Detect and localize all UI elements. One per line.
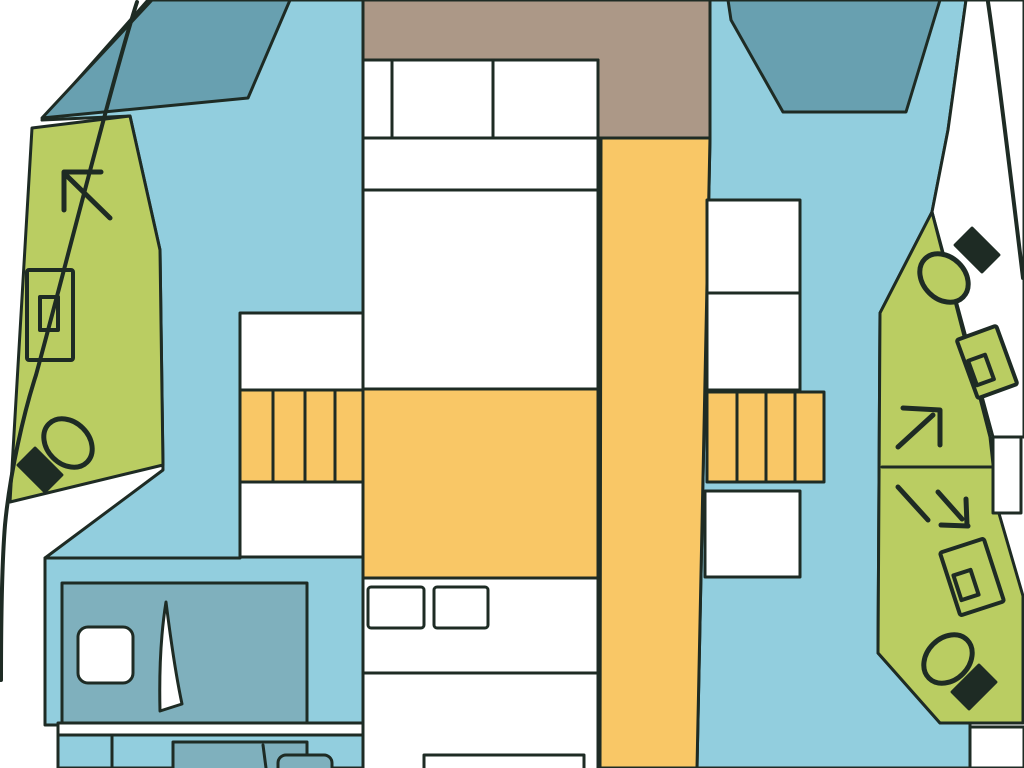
guest-bed-pillow-right <box>434 587 488 628</box>
starboard-locker-upper <box>707 200 800 293</box>
owner-bed <box>363 60 598 389</box>
floorplan-svg <box>0 0 1024 768</box>
guest-bed-pillow-left <box>368 587 424 628</box>
port-landing-upper <box>240 313 363 390</box>
port-landing-lower <box>240 482 363 557</box>
boat-floor-plan <box>0 0 1024 768</box>
guest-bed-footboard <box>424 755 584 768</box>
starboard-window <box>993 437 1021 513</box>
port-cabin-pillow <box>78 627 133 683</box>
starboard-stern-locker <box>970 727 1024 768</box>
starboard-locker-lower <box>707 293 800 390</box>
port-bulkhead <box>58 723 363 735</box>
starboard-landing-lower <box>705 491 800 577</box>
port-stairs <box>240 390 363 482</box>
saloon-floor <box>363 389 598 578</box>
corridor-floor <box>600 138 710 768</box>
port-aft-cabin-pillow <box>278 755 332 768</box>
